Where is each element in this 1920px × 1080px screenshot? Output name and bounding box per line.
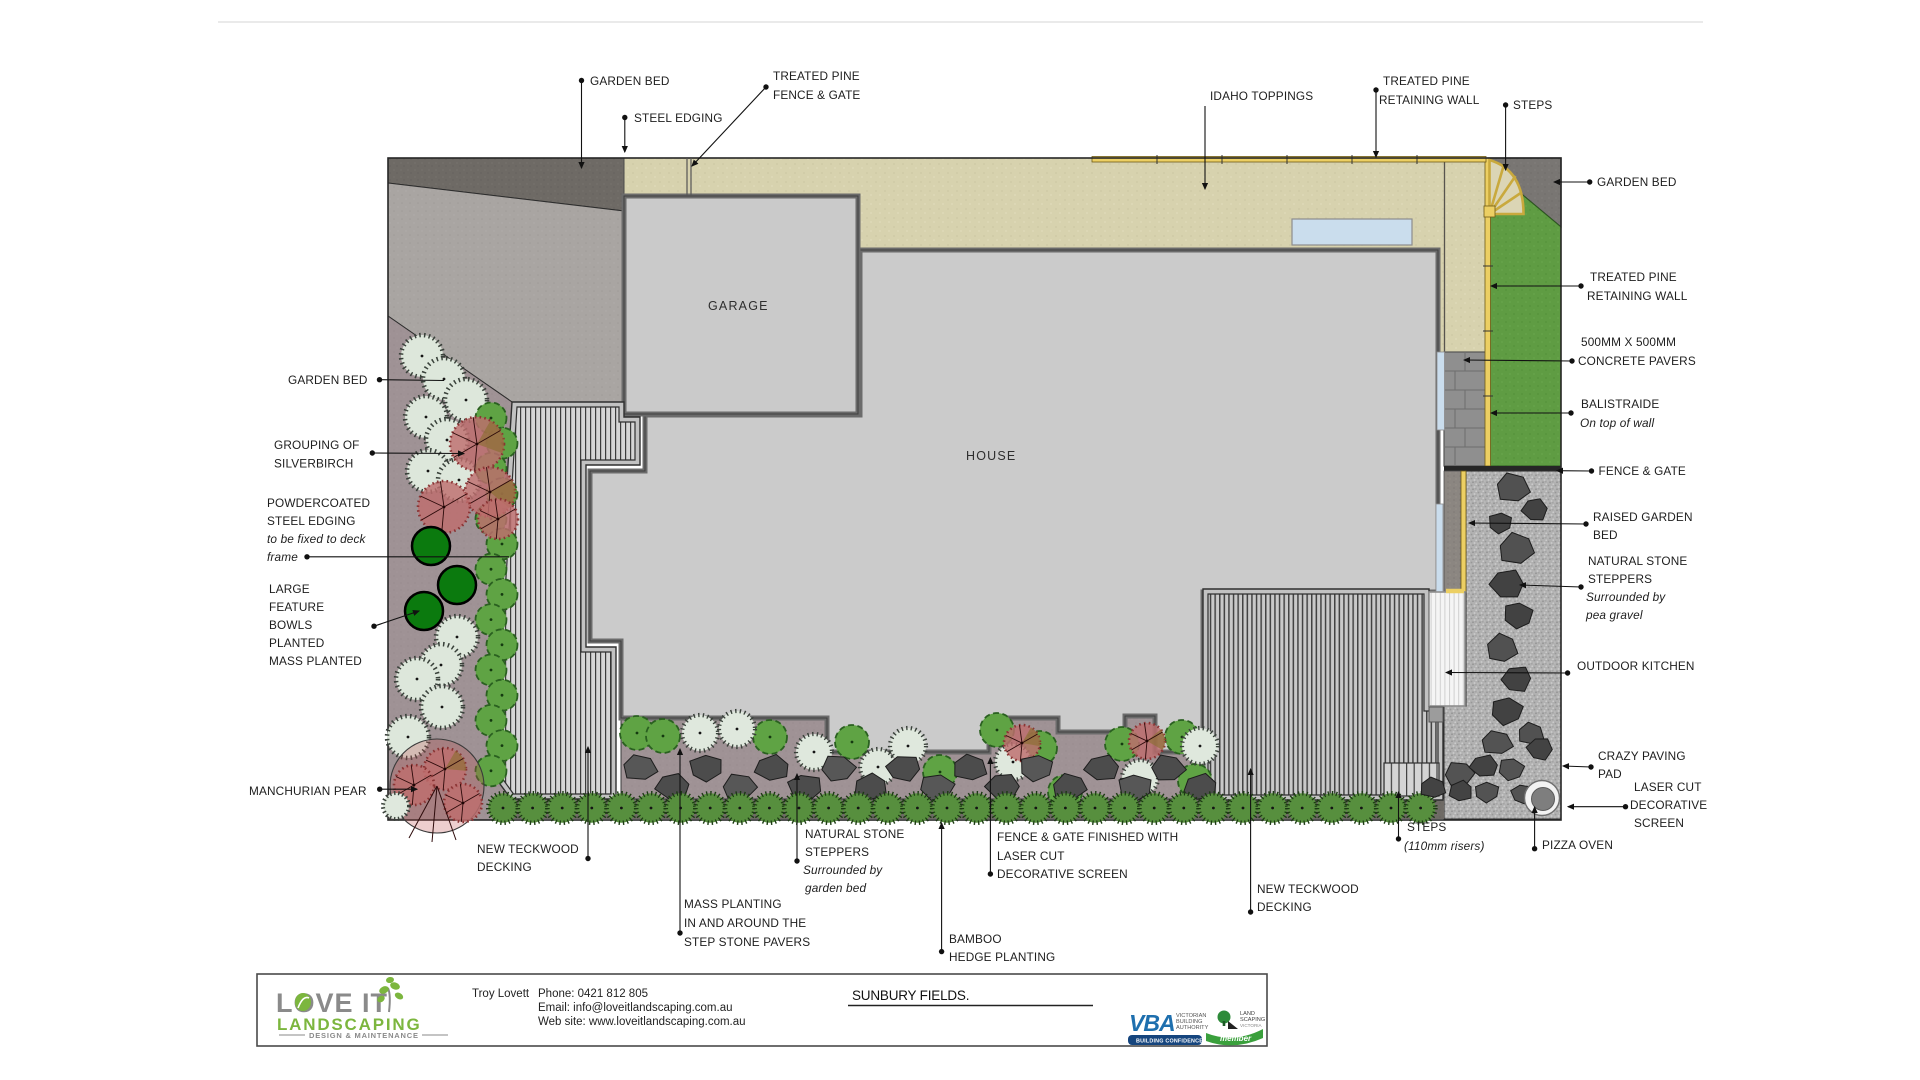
svg-text:DECORATIVE: DECORATIVE: [1630, 798, 1707, 812]
svg-text:PLANTED: PLANTED: [269, 636, 324, 650]
svg-text:BAMBOO: BAMBOO: [949, 932, 1002, 946]
svg-text:LASER CUT: LASER CUT: [997, 849, 1065, 863]
svg-text:FENCE & GATE: FENCE & GATE: [773, 88, 860, 102]
svg-text:CONCRETE PAVERS: CONCRETE PAVERS: [1578, 354, 1696, 368]
svg-text:STEPPERS: STEPPERS: [1588, 572, 1652, 586]
svg-text:MASS PLANTED: MASS PLANTED: [269, 654, 362, 668]
svg-text:BOWLS: BOWLS: [269, 618, 312, 632]
svg-text:MASS PLANTING: MASS PLANTING: [684, 897, 782, 911]
svg-text:Web site: www.loveitlandscapin: Web site: www.loveitlandscaping.com.au: [538, 1016, 746, 1028]
svg-text:SCREEN: SCREEN: [1634, 816, 1684, 830]
svg-text:GARAGE: GARAGE: [708, 299, 769, 313]
svg-text:DESIGN & MAINTENANCE: DESIGN & MAINTENANCE: [309, 1031, 419, 1040]
svg-text:PIZZA OVEN: PIZZA OVEN: [1542, 838, 1613, 852]
svg-text:GARDEN BED: GARDEN BED: [288, 373, 368, 387]
svg-text:STEPPERS: STEPPERS: [805, 845, 869, 859]
svg-text:MANCHURIAN PEAR: MANCHURIAN PEAR: [249, 784, 367, 798]
svg-text:TREATED PINE: TREATED PINE: [1590, 270, 1677, 284]
svg-text:LARGE: LARGE: [269, 582, 310, 596]
svg-text:NATURAL STONE: NATURAL STONE: [805, 827, 904, 841]
svg-text:DECORATIVE SCREEN: DECORATIVE SCREEN: [997, 867, 1128, 881]
svg-text:IN AND AROUND THE: IN AND AROUND THE: [684, 916, 806, 930]
svg-text:TREATED PINE: TREATED PINE: [773, 69, 860, 83]
svg-text:SUNBURY FIELDS.: SUNBURY FIELDS.: [852, 988, 969, 1003]
svg-text:member: member: [1220, 1034, 1252, 1043]
svg-text:IDAHO TOPPINGS: IDAHO TOPPINGS: [1210, 89, 1313, 103]
svg-text:Surrounded by: Surrounded by: [1586, 590, 1666, 604]
svg-text:RAISED GARDEN: RAISED GARDEN: [1593, 510, 1693, 524]
svg-text:NEW TECKWOOD: NEW TECKWOOD: [477, 842, 579, 856]
svg-text:STEPS: STEPS: [1407, 820, 1446, 834]
svg-text:STEEL EDGING: STEEL EDGING: [267, 514, 356, 528]
svg-text:CRAZY PAVING: CRAZY PAVING: [1598, 749, 1686, 763]
svg-text:Troy Lovett: Troy Lovett: [472, 988, 530, 1000]
svg-text:LOVE IT: LOVE IT: [276, 988, 388, 1018]
svg-text:BED: BED: [1593, 528, 1618, 542]
svg-text:Phone: 0421 812 805: Phone: 0421 812 805: [538, 988, 648, 1000]
svg-text:LASER CUT: LASER CUT: [1634, 780, 1702, 794]
svg-text:STEPS: STEPS: [1513, 98, 1552, 112]
svg-text:AUTHORITY: AUTHORITY: [1176, 1025, 1209, 1031]
svg-text:FENCE & GATE FINISHED WITH: FENCE & GATE FINISHED WITH: [997, 830, 1178, 844]
svg-text:RETAINING WALL: RETAINING WALL: [1587, 289, 1688, 303]
svg-text:SILVERBIRCH: SILVERBIRCH: [274, 457, 353, 471]
svg-text:pea gravel: pea gravel: [1585, 608, 1643, 622]
svg-text:PAD: PAD: [1598, 767, 1622, 781]
svg-text:STEP STONE PAVERS: STEP STONE PAVERS: [684, 935, 810, 949]
svg-text:DECKING: DECKING: [1257, 900, 1312, 914]
svg-text:VBA: VBA: [1129, 1010, 1175, 1036]
svg-text:GARDEN BED: GARDEN BED: [590, 74, 670, 88]
svg-text:OUTDOOR KITCHEN: OUTDOOR KITCHEN: [1577, 659, 1695, 673]
svg-text:BUILDING CONFIDENCE: BUILDING CONFIDENCE: [1136, 1038, 1203, 1044]
svg-text:500MM X 500MM: 500MM X 500MM: [1581, 335, 1676, 349]
svg-text:frame: frame: [267, 550, 298, 564]
svg-text:(110mm risers): (110mm risers): [1404, 839, 1485, 853]
svg-text:NEW TECKWOOD: NEW TECKWOOD: [1257, 882, 1359, 896]
svg-text:to be fixed to deck: to be fixed to deck: [267, 532, 367, 546]
svg-text:VICTORIA: VICTORIA: [1240, 1023, 1263, 1028]
svg-text:GROUPING OF: GROUPING OF: [274, 438, 360, 452]
svg-text:STEEL EDGING: STEEL EDGING: [634, 111, 723, 125]
svg-text:FENCE & GATE: FENCE & GATE: [1599, 464, 1686, 478]
svg-text:garden bed: garden bed: [805, 881, 866, 895]
svg-text:FEATURE: FEATURE: [269, 600, 324, 614]
svg-text:BALISTRAIDE: BALISTRAIDE: [1581, 397, 1659, 411]
svg-text:On top of wall: On top of wall: [1580, 416, 1654, 430]
svg-text:HOUSE: HOUSE: [966, 449, 1016, 463]
svg-text:DECKING: DECKING: [477, 860, 532, 874]
svg-text:NATURAL STONE: NATURAL STONE: [1588, 554, 1687, 568]
svg-text:HEDGE PLANTING: HEDGE PLANTING: [949, 950, 1055, 964]
svg-text:TREATED PINE: TREATED PINE: [1383, 74, 1470, 88]
svg-text:Email: info@loveitlandscaping.: Email: info@loveitlandscaping.com.au: [538, 1002, 733, 1014]
svg-text:POWDERCOATED: POWDERCOATED: [267, 496, 370, 510]
svg-text:RETAINING WALL: RETAINING WALL: [1379, 93, 1480, 107]
svg-text:Surrounded by: Surrounded by: [803, 863, 883, 877]
svg-text:GARDEN BED: GARDEN BED: [1597, 175, 1677, 189]
